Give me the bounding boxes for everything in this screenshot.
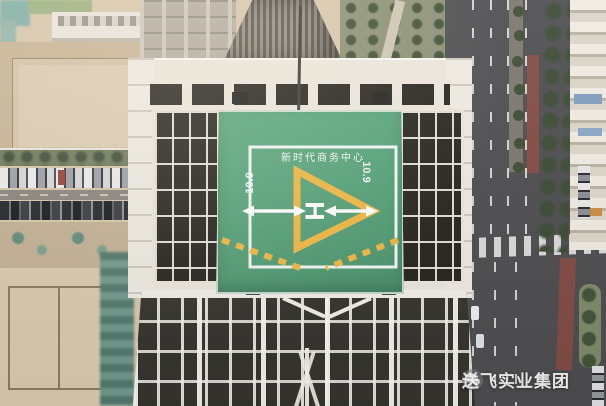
watermark-text: 送飞实业集团 xyxy=(462,367,570,392)
road-median xyxy=(509,0,523,172)
blue-roof xyxy=(578,128,602,136)
helipad-h-marking: H xyxy=(299,201,329,221)
lane-line xyxy=(472,0,474,236)
helipad-markings: 新时代商务中心 10.9 10.9 H xyxy=(216,110,404,294)
rooftop-helipad: 新时代商务中心 10.9 10.9 H xyxy=(216,110,404,294)
construction-foundation-top xyxy=(12,58,142,154)
neighbor-tower xyxy=(224,0,342,60)
roof-vent xyxy=(372,92,388,104)
roof-vent xyxy=(232,92,248,104)
helipad-size-left: 10.9 xyxy=(244,172,256,193)
shrub-median xyxy=(579,284,601,368)
tower-facade-lattice xyxy=(133,290,475,406)
blue-roof xyxy=(574,94,602,104)
red-car xyxy=(58,170,65,185)
foundation-outline xyxy=(8,286,112,390)
bus-lane xyxy=(527,55,539,173)
median-trees xyxy=(513,6,524,17)
helipad-arrow-left xyxy=(242,206,306,217)
rooftop-units xyxy=(58,16,146,26)
helipad-dashed-line-left xyxy=(222,240,300,268)
roof-opening-left xyxy=(152,108,220,284)
city-block xyxy=(140,0,236,60)
helipad-size-right: 10.9 xyxy=(360,161,372,182)
helipad-dashed-line-right xyxy=(326,240,398,268)
watermark: 送飞实业集团 xyxy=(462,366,606,392)
roof-opening-right xyxy=(398,108,464,284)
helipad-building-name: 新时代商务中心 xyxy=(281,151,365,164)
white-car xyxy=(471,306,479,320)
aerial-photo: 新时代商务中心 10.9 10.9 H 送飞 xyxy=(0,0,606,406)
white-car xyxy=(476,334,484,348)
lane-line xyxy=(490,0,492,236)
parked-cars-column xyxy=(578,166,590,218)
bus-lane xyxy=(556,258,576,370)
